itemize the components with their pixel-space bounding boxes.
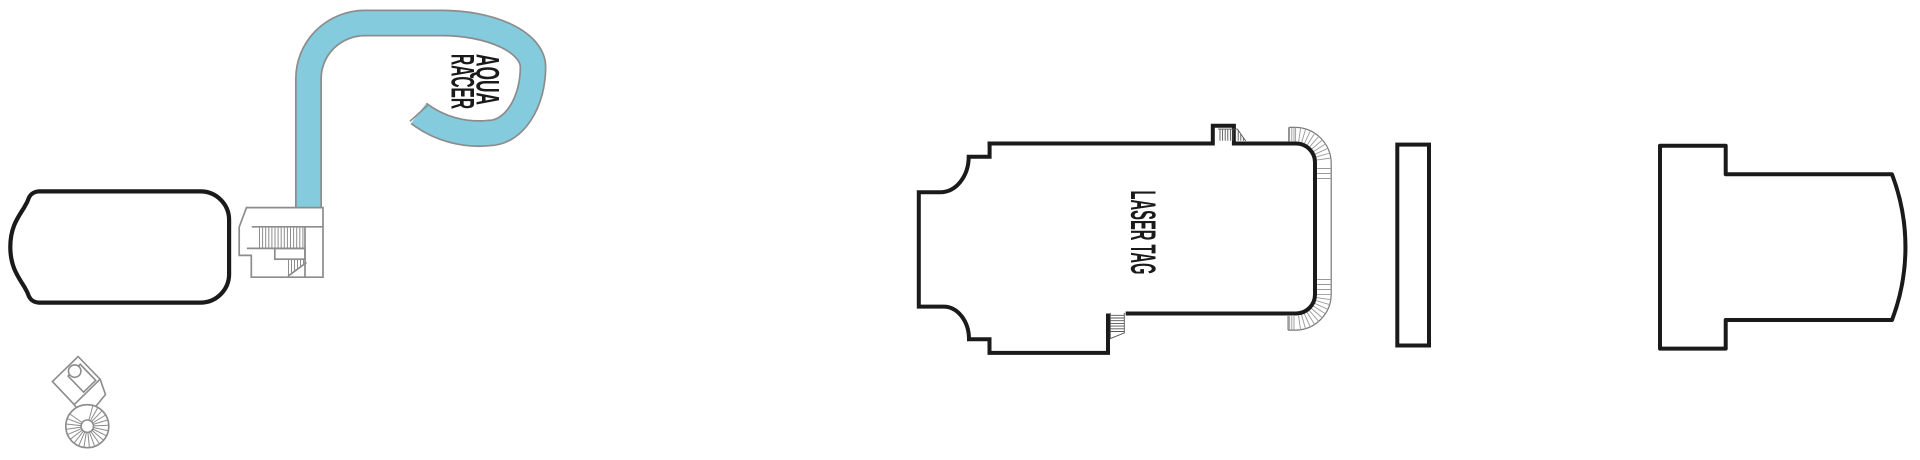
svg-text:LASER TAG: LASER TAG <box>1123 191 1162 275</box>
svg-text:RACER: RACER <box>445 54 481 109</box>
